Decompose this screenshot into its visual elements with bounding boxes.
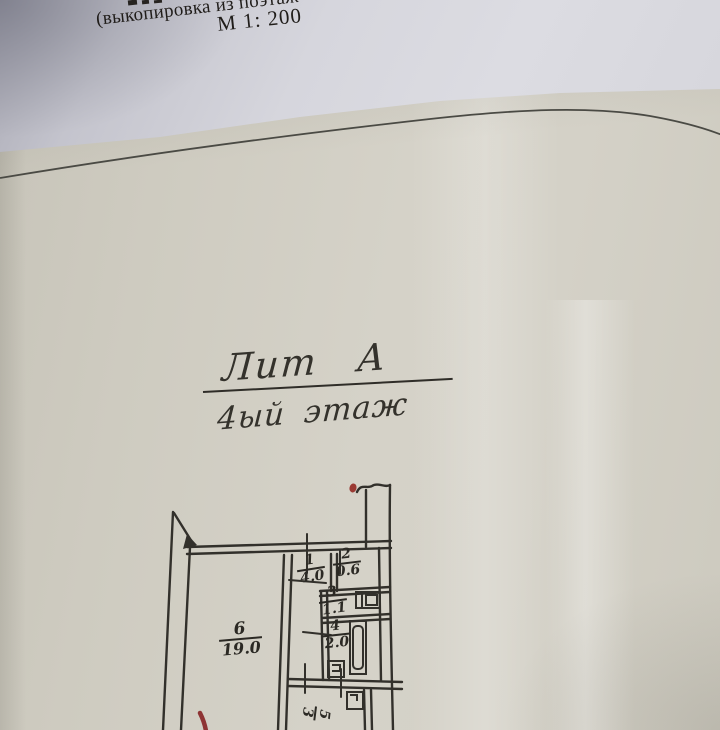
corridor-wall-a: [278, 555, 284, 730]
wall-left-inner: [181, 547, 190, 730]
stove-icon: [347, 692, 363, 709]
room-area: 19.0: [219, 636, 263, 658]
room-label-4: 4 2.0: [320, 619, 351, 652]
room-area: 0.6: [333, 561, 363, 581]
corridor-wall-b: [286, 555, 292, 730]
wall-left-outer: [163, 512, 173, 730]
room-label-6: 6 19.0: [218, 619, 264, 658]
room5-right-b: [371, 690, 372, 730]
room-label-3: 3 1.1: [317, 584, 349, 618]
wall-right-outer: [390, 485, 393, 730]
room-label-1: 1 4.0: [295, 552, 328, 587]
room-area: 1.1: [319, 598, 349, 618]
shaft-cap: [357, 485, 390, 492]
wall-top-1: [187, 541, 391, 547]
wall-top-2: [187, 548, 391, 554]
room5-right-a: [364, 690, 365, 730]
photographed-document: (выкопировка из поэтаж М 1: 200 Лит А 4ы…: [0, 0, 720, 730]
room-number: 5: [315, 707, 331, 722]
room-label-2: 2 0.6: [331, 546, 363, 580]
room-area: 2.0: [322, 633, 352, 652]
floor-plan-drawing: [0, 0, 720, 730]
red-stroke-mark: [200, 713, 206, 730]
bathtub-icon: [350, 621, 366, 674]
room-area: 3: [299, 705, 317, 721]
